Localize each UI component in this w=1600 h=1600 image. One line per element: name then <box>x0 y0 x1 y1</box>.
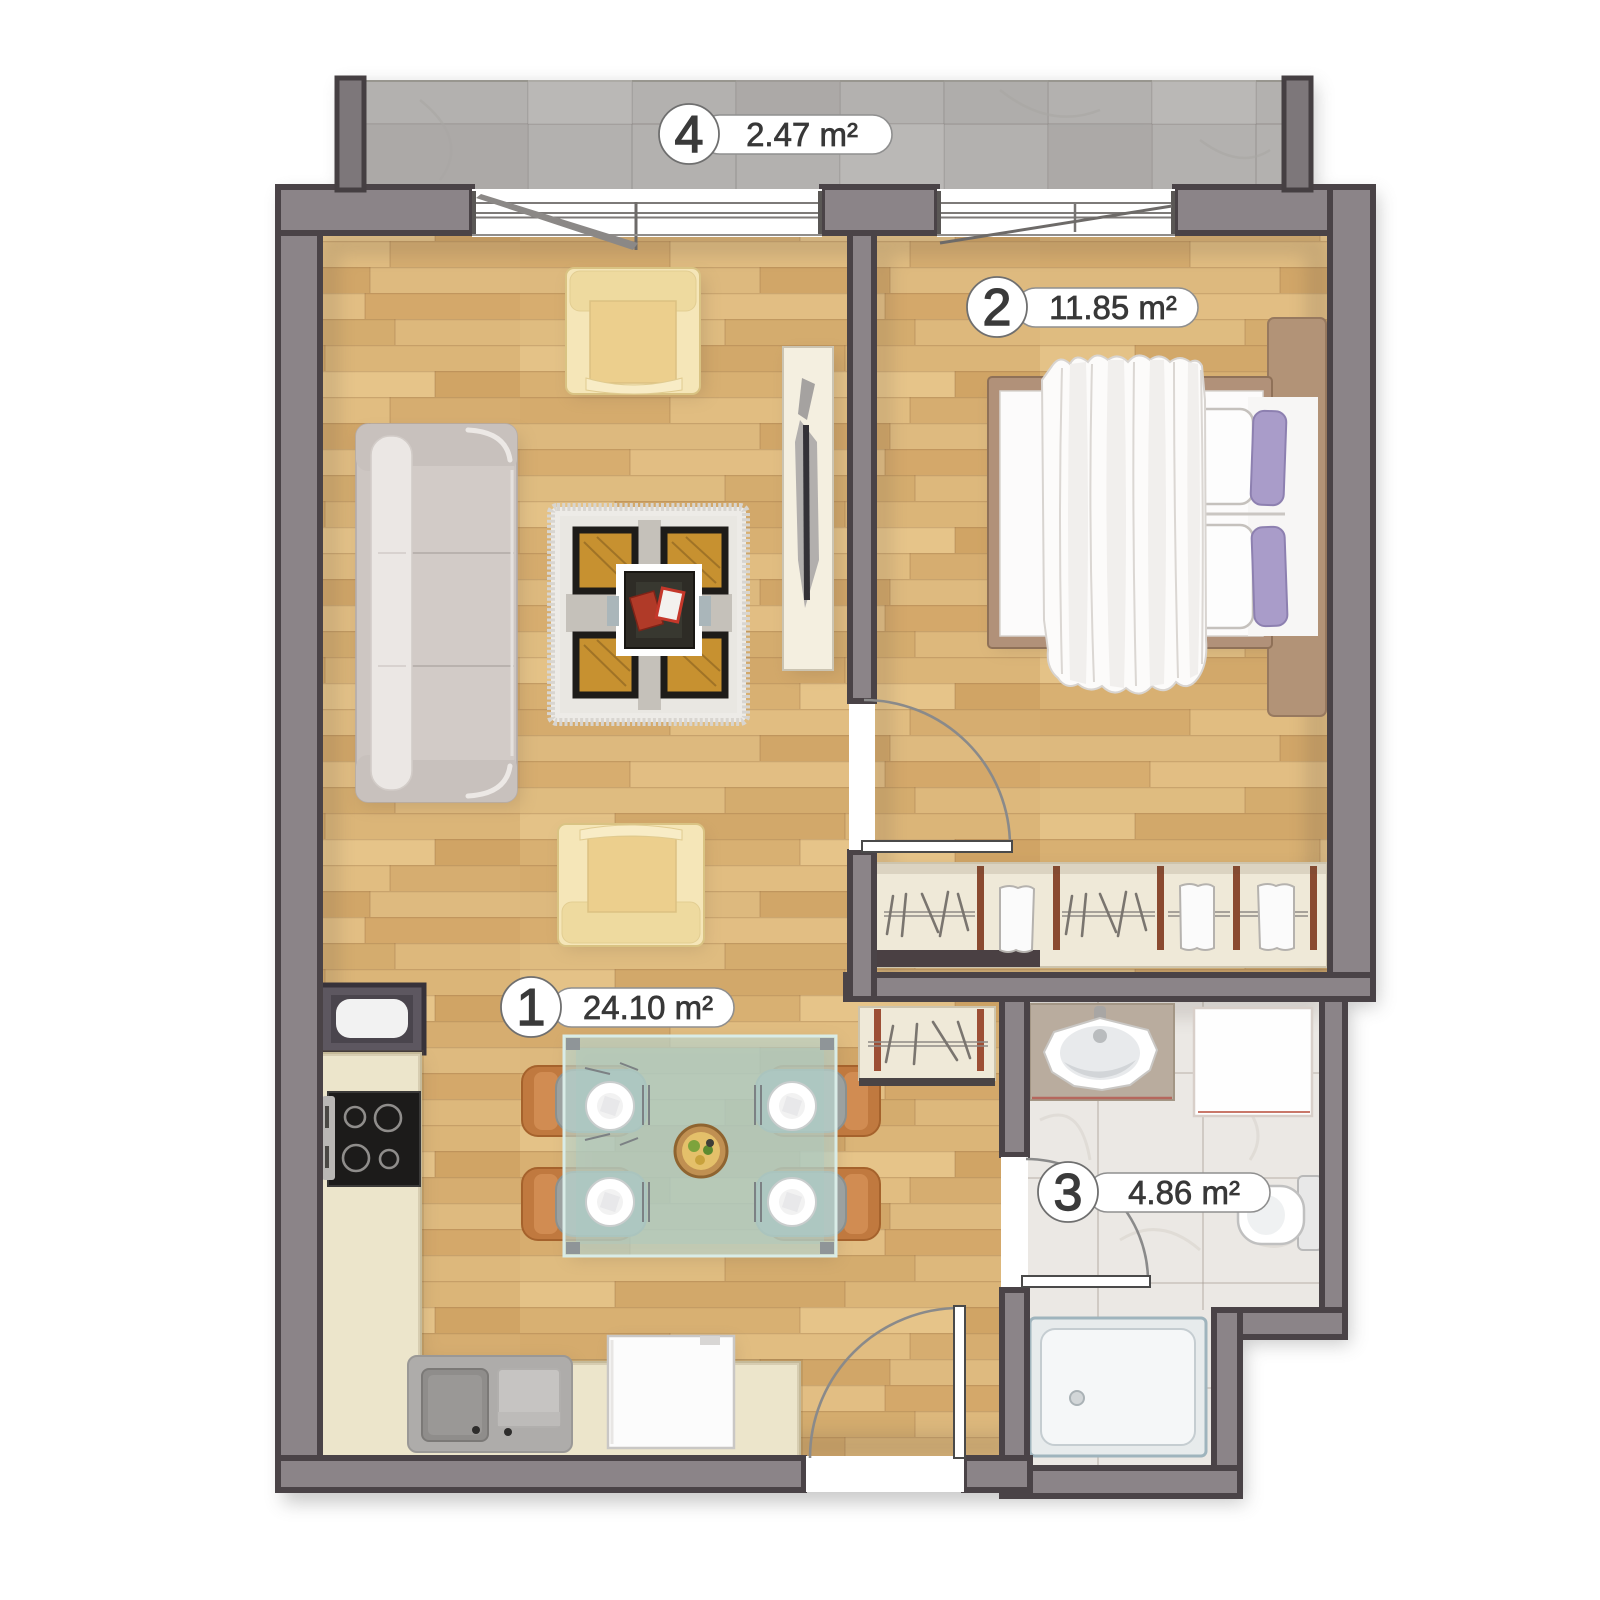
svg-text:24.10 m²: 24.10 m² <box>583 989 713 1026</box>
svg-text:1: 1 <box>517 979 546 1037</box>
svg-text:3: 3 <box>1054 1164 1083 1222</box>
svg-text:2: 2 <box>983 279 1012 337</box>
svg-text:4: 4 <box>675 106 704 164</box>
svg-text:2.47 m²: 2.47 m² <box>746 116 858 153</box>
svg-text:4.86 m²: 4.86 m² <box>1128 1174 1240 1211</box>
svg-text:11.85 m²: 11.85 m² <box>1049 289 1177 326</box>
